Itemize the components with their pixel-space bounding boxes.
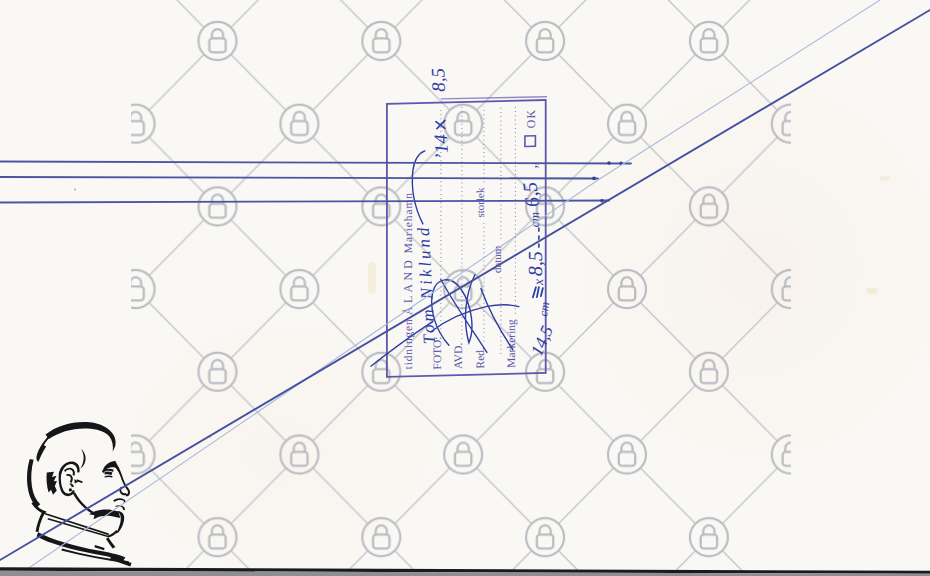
svg-text:OK: OK bbox=[524, 109, 538, 129]
svg-text:8,5: 8,5 bbox=[427, 67, 449, 92]
svg-text:storlek: storlek bbox=[474, 187, 486, 218]
svg-text:Red.: Red. bbox=[474, 347, 486, 369]
svg-text:Markering: Markering bbox=[505, 319, 518, 368]
svg-text:’14: ’14 bbox=[430, 133, 452, 160]
svg-text:AVD.: AVD. bbox=[452, 343, 464, 370]
svg-text:cm: cm bbox=[536, 301, 552, 318]
svg-text:6,5: 6,5 bbox=[518, 181, 542, 209]
svg-text:8,5: 8,5 bbox=[524, 251, 546, 277]
svg-text:x: x bbox=[531, 278, 546, 286]
